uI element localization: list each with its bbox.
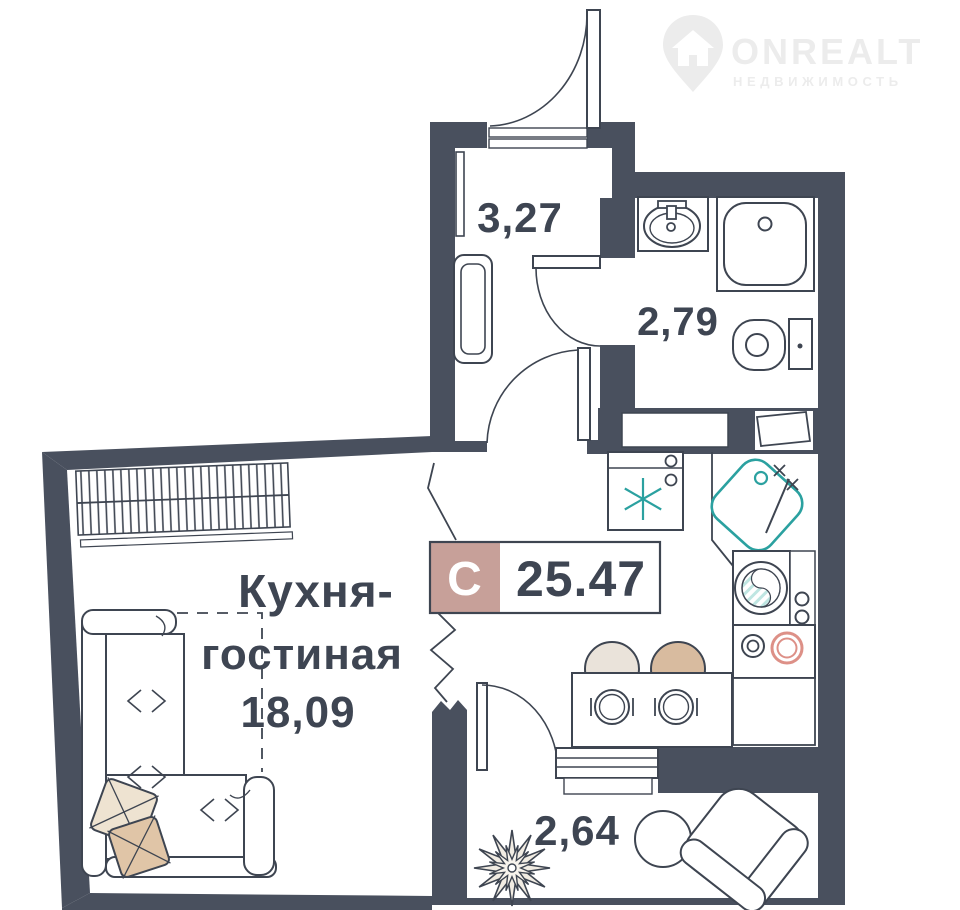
area-badge: С 25.47	[430, 542, 660, 613]
balcony-window	[556, 748, 658, 794]
badge-type-letter: С	[447, 553, 483, 606]
shower-tray	[717, 197, 814, 291]
dining-set	[572, 642, 732, 747]
sofa-arm-top	[82, 610, 176, 634]
balcony-divider-wall	[658, 747, 818, 793]
toilet	[733, 319, 812, 370]
hallway-bottom-wall-left	[432, 441, 487, 452]
armchair	[675, 779, 813, 910]
bathroom-area-label: 2,79	[637, 300, 719, 344]
watermark-subtitle: НЕДВИЖИМОСТЬ	[733, 74, 903, 89]
fridge	[608, 452, 683, 530]
niche-door-leaf	[757, 412, 810, 446]
floor-plan-canvas: ONREALT НЕДВИЖИМОСТЬ	[0, 0, 960, 910]
watermark-logo: ONREALT НЕДВИЖИМОСТЬ	[663, 15, 923, 92]
kitchen-cabinet	[733, 678, 815, 745]
balcony-door-swing	[482, 685, 558, 770]
vent-niche	[622, 411, 813, 450]
kitchen-sink	[705, 453, 810, 558]
sofa-seat	[106, 634, 184, 775]
washing-machine	[733, 551, 815, 625]
entrance-door	[489, 10, 600, 148]
sofa-back	[82, 612, 106, 876]
radiator-window	[76, 463, 293, 547]
entrance-threshold	[489, 128, 587, 137]
balcony-area-label: 2,64	[534, 807, 620, 854]
bottom-wall	[62, 893, 432, 910]
stove	[733, 625, 815, 745]
burner-small	[742, 635, 764, 657]
watermark-brand: ONREALT	[731, 31, 923, 72]
interior-door-swing	[487, 350, 578, 443]
washbasin	[638, 197, 708, 251]
kitchen-living-name-line2: гостиная	[201, 630, 403, 679]
interior-door	[487, 348, 590, 443]
hallway-mirror	[456, 152, 464, 236]
toilet-bowl	[733, 320, 785, 370]
balcony-door-leaf	[477, 683, 487, 770]
kitchen-living-name-line1: Кухня-	[238, 565, 394, 617]
knob	[796, 611, 809, 624]
bathroom-left-wall-upper	[600, 198, 635, 258]
hallway-wardrobe-inner	[461, 264, 485, 354]
total-area-value: 25.47	[516, 551, 646, 607]
sink-drain	[755, 472, 767, 484]
entrance-door-leaf	[587, 10, 600, 128]
bathroom-door	[533, 256, 600, 346]
balcony-door	[477, 683, 558, 770]
bathroom-left-wall-lower	[600, 345, 635, 412]
balcony-left-wall	[432, 700, 467, 905]
bathroom-top-wall	[612, 172, 845, 198]
hallway-furniture	[454, 152, 492, 363]
hallway-left-wall	[430, 122, 455, 447]
kitchen-living-area-label: 18,09	[240, 688, 355, 737]
knob	[796, 593, 809, 606]
logo-pin-icon	[663, 15, 723, 92]
entrance-threshold	[489, 139, 587, 148]
entrance-left-stub	[430, 122, 487, 148]
window-sill	[564, 778, 652, 794]
bathroom-door-leaf	[533, 256, 600, 268]
entrance-door-swing	[490, 14, 587, 126]
floor-plan: ONREALT НЕДВИЖИМОСТЬ	[0, 0, 960, 910]
hallway-bottom-wall-right	[587, 440, 600, 454]
hallway-area-label: 3,27	[477, 194, 563, 241]
interior-door-leaf	[578, 348, 590, 440]
bathroom-door-swing	[536, 268, 600, 346]
right-outer-wall	[818, 172, 845, 905]
